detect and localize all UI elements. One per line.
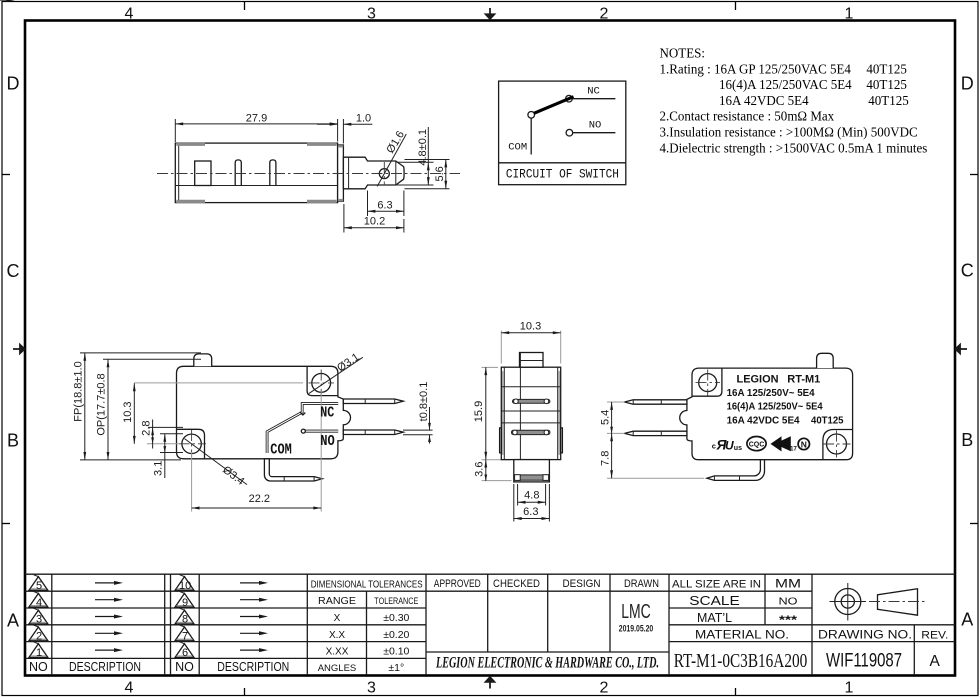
svg-text:1.0: 1.0 <box>356 113 371 125</box>
svg-text:X.XX: X.XX <box>326 647 349 658</box>
svg-text:DRAWING NO.: DRAWING NO. <box>818 628 912 642</box>
svg-text:B: B <box>961 430 973 450</box>
svg-text:6.3: 6.3 <box>377 199 392 211</box>
svg-text:NC: NC <box>587 85 600 97</box>
svg-text:c: c <box>712 441 716 450</box>
svg-text:2.Contact resistance : 50mΩ Ma: 2.Contact resistance : 50mΩ Max <box>660 108 835 124</box>
svg-text:7.8: 7.8 <box>599 451 611 466</box>
svg-text:16(4)A 125/250VAC 5E4: 16(4)A 125/250VAC 5E4 <box>719 77 852 93</box>
svg-text:2.8: 2.8 <box>140 421 152 436</box>
svg-text:8: 8 <box>182 614 188 626</box>
svg-text:DIMENSIONAL TOLERANCES: DIMENSIONAL TOLERANCES <box>311 578 423 590</box>
svg-text:10.3: 10.3 <box>520 320 541 332</box>
svg-text:NO: NO <box>175 660 194 674</box>
svg-text:us: us <box>734 445 742 452</box>
svg-text:OP(17.7±0.8: OP(17.7±0.8 <box>96 373 108 435</box>
svg-text:3: 3 <box>367 680 376 697</box>
svg-text:D: D <box>7 74 20 94</box>
svg-text:DESCRIPTION: DESCRIPTION <box>217 660 289 674</box>
svg-text:3: 3 <box>367 6 376 23</box>
svg-text:COM: COM <box>270 442 292 459</box>
svg-text:A: A <box>930 653 941 670</box>
svg-text:LEGION ELECTRONIC & HARDWAR: LEGION ELECTRONIC & HARDWARE CO., LTD. <box>435 655 659 672</box>
svg-text:C: C <box>961 261 974 281</box>
svg-text:APPROVED: APPROVED <box>434 578 481 590</box>
svg-text:22.2: 22.2 <box>249 493 270 505</box>
svg-text:SCALE: SCALE <box>689 594 740 608</box>
svg-text:16A 42VDC 5E4: 16A 42VDC 5E4 <box>727 416 800 427</box>
svg-text:2019.05.20: 2019.05.20 <box>619 624 654 634</box>
svg-text:U: U <box>725 439 734 453</box>
svg-text:C: C <box>7 261 20 281</box>
svg-text:16A 42VDC 5E4: 16A 42VDC 5E4 <box>719 92 809 108</box>
svg-text:2: 2 <box>36 630 42 642</box>
svg-text:±0.30: ±0.30 <box>383 612 409 624</box>
svg-text:LMC: LMC <box>621 601 651 623</box>
svg-text:10: 10 <box>179 580 191 592</box>
svg-text:NO: NO <box>29 660 48 674</box>
svg-text:***: *** <box>779 615 798 627</box>
svg-text:CHECKED: CHECKED <box>493 578 540 590</box>
svg-text:3.Insulation resistance : >100: 3.Insulation resistance : >100MΩ (Min) 5… <box>660 124 918 140</box>
svg-text:DRAWN: DRAWN <box>624 578 659 590</box>
svg-text:2: 2 <box>600 680 609 697</box>
svg-text:±1°: ±1° <box>388 662 404 674</box>
svg-text:MAT’L: MAT’L <box>697 611 732 625</box>
svg-text:5: 5 <box>36 580 42 592</box>
svg-text:COM: COM <box>508 141 527 153</box>
svg-text:DESCRIPTION: DESCRIPTION <box>69 660 141 674</box>
svg-text:1: 1 <box>845 6 854 23</box>
svg-text:N: N <box>801 439 807 449</box>
svg-text:10.2: 10.2 <box>364 216 385 228</box>
svg-text:±0.10: ±0.10 <box>383 646 409 658</box>
svg-text:3: 3 <box>36 614 42 626</box>
svg-text:5.4: 5.4 <box>599 410 611 425</box>
svg-text:10.3: 10.3 <box>122 401 134 422</box>
svg-text:3.6: 3.6 <box>473 462 485 477</box>
svg-text:4: 4 <box>125 6 134 23</box>
svg-text:4.8±0.1: 4.8±0.1 <box>417 129 429 166</box>
svg-text:A: A <box>7 610 19 630</box>
svg-text:NOTES:: NOTES: <box>660 45 706 61</box>
svg-text:4.Dielectric strength : >1500V: 4.Dielectric strength : >1500VAC 0.5mA 1… <box>660 140 928 156</box>
svg-text:CQC: CQC <box>749 441 765 448</box>
svg-text:16(4)A 125/250V~ 5E4: 16(4)A 125/250V~ 5E4 <box>727 402 823 413</box>
svg-text:t0.8±0.1: t0.8±0.1 <box>418 382 430 422</box>
svg-text:RT-M1-0C3B16A200: RT-M1-0C3B16A200 <box>674 650 808 672</box>
svg-text:B: B <box>7 430 19 450</box>
svg-text:16A 125/250V~ 5E4: 16A 125/250V~ 5E4 <box>727 388 815 399</box>
svg-text:9: 9 <box>182 597 188 609</box>
svg-text:FP(18.8±1.0: FP(18.8±1.0 <box>73 361 85 421</box>
svg-text:NO: NO <box>320 433 335 450</box>
svg-text:NC: NC <box>320 405 334 422</box>
svg-text:1.Rating : 16A GP 125/250VAC 5: 1.Rating : 16A GP 125/250VAC 5E4 <box>660 61 852 77</box>
svg-text:WIF119087: WIF119087 <box>826 651 902 672</box>
svg-text:40T125: 40T125 <box>868 92 909 108</box>
svg-text:40T125: 40T125 <box>866 61 907 77</box>
svg-text:RT-M1: RT-M1 <box>787 374 820 386</box>
svg-text:15.9: 15.9 <box>473 401 485 422</box>
svg-text:27.9: 27.9 <box>246 113 267 125</box>
svg-text:ANGLES: ANGLES <box>318 663 357 674</box>
svg-text:MATERIAL NO.: MATERIAL NO. <box>695 628 789 642</box>
svg-text:17: 17 <box>790 447 797 453</box>
svg-text:2: 2 <box>600 6 609 23</box>
svg-text:3.1: 3.1 <box>153 461 165 476</box>
svg-text:DESIGN: DESIGN <box>563 578 601 590</box>
svg-text:4: 4 <box>125 680 134 697</box>
svg-text:TOLERANCE: TOLERANCE <box>374 596 418 607</box>
svg-text:6: 6 <box>182 647 188 659</box>
svg-text:6.3: 6.3 <box>523 506 538 518</box>
svg-text:LEGION: LEGION <box>737 374 779 386</box>
svg-text:4.8: 4.8 <box>524 490 539 502</box>
svg-text:CIRCUIT OF SWITCH: CIRCUIT OF SWITCH <box>506 168 619 182</box>
svg-text:NO: NO <box>779 596 798 608</box>
svg-text:MM: MM <box>775 579 801 591</box>
svg-text:5.6: 5.6 <box>434 166 446 181</box>
svg-text:NO: NO <box>589 119 602 131</box>
svg-text:ALL SIZE ARE IN: ALL SIZE ARE IN <box>672 578 761 590</box>
svg-text:D: D <box>961 73 974 93</box>
svg-text:40T125: 40T125 <box>811 416 844 427</box>
svg-text:40T125: 40T125 <box>866 77 907 93</box>
svg-text:1: 1 <box>845 680 854 697</box>
svg-text:7: 7 <box>182 630 188 642</box>
svg-text:RANGE: RANGE <box>318 595 356 607</box>
svg-text:1: 1 <box>36 647 42 659</box>
svg-text:X: X <box>334 613 341 624</box>
svg-text:±0.20: ±0.20 <box>383 629 409 641</box>
svg-text:4: 4 <box>36 597 42 609</box>
svg-text:X.X: X.X <box>329 630 345 641</box>
svg-text:REV.: REV. <box>921 630 948 642</box>
svg-text:A: A <box>961 609 973 629</box>
